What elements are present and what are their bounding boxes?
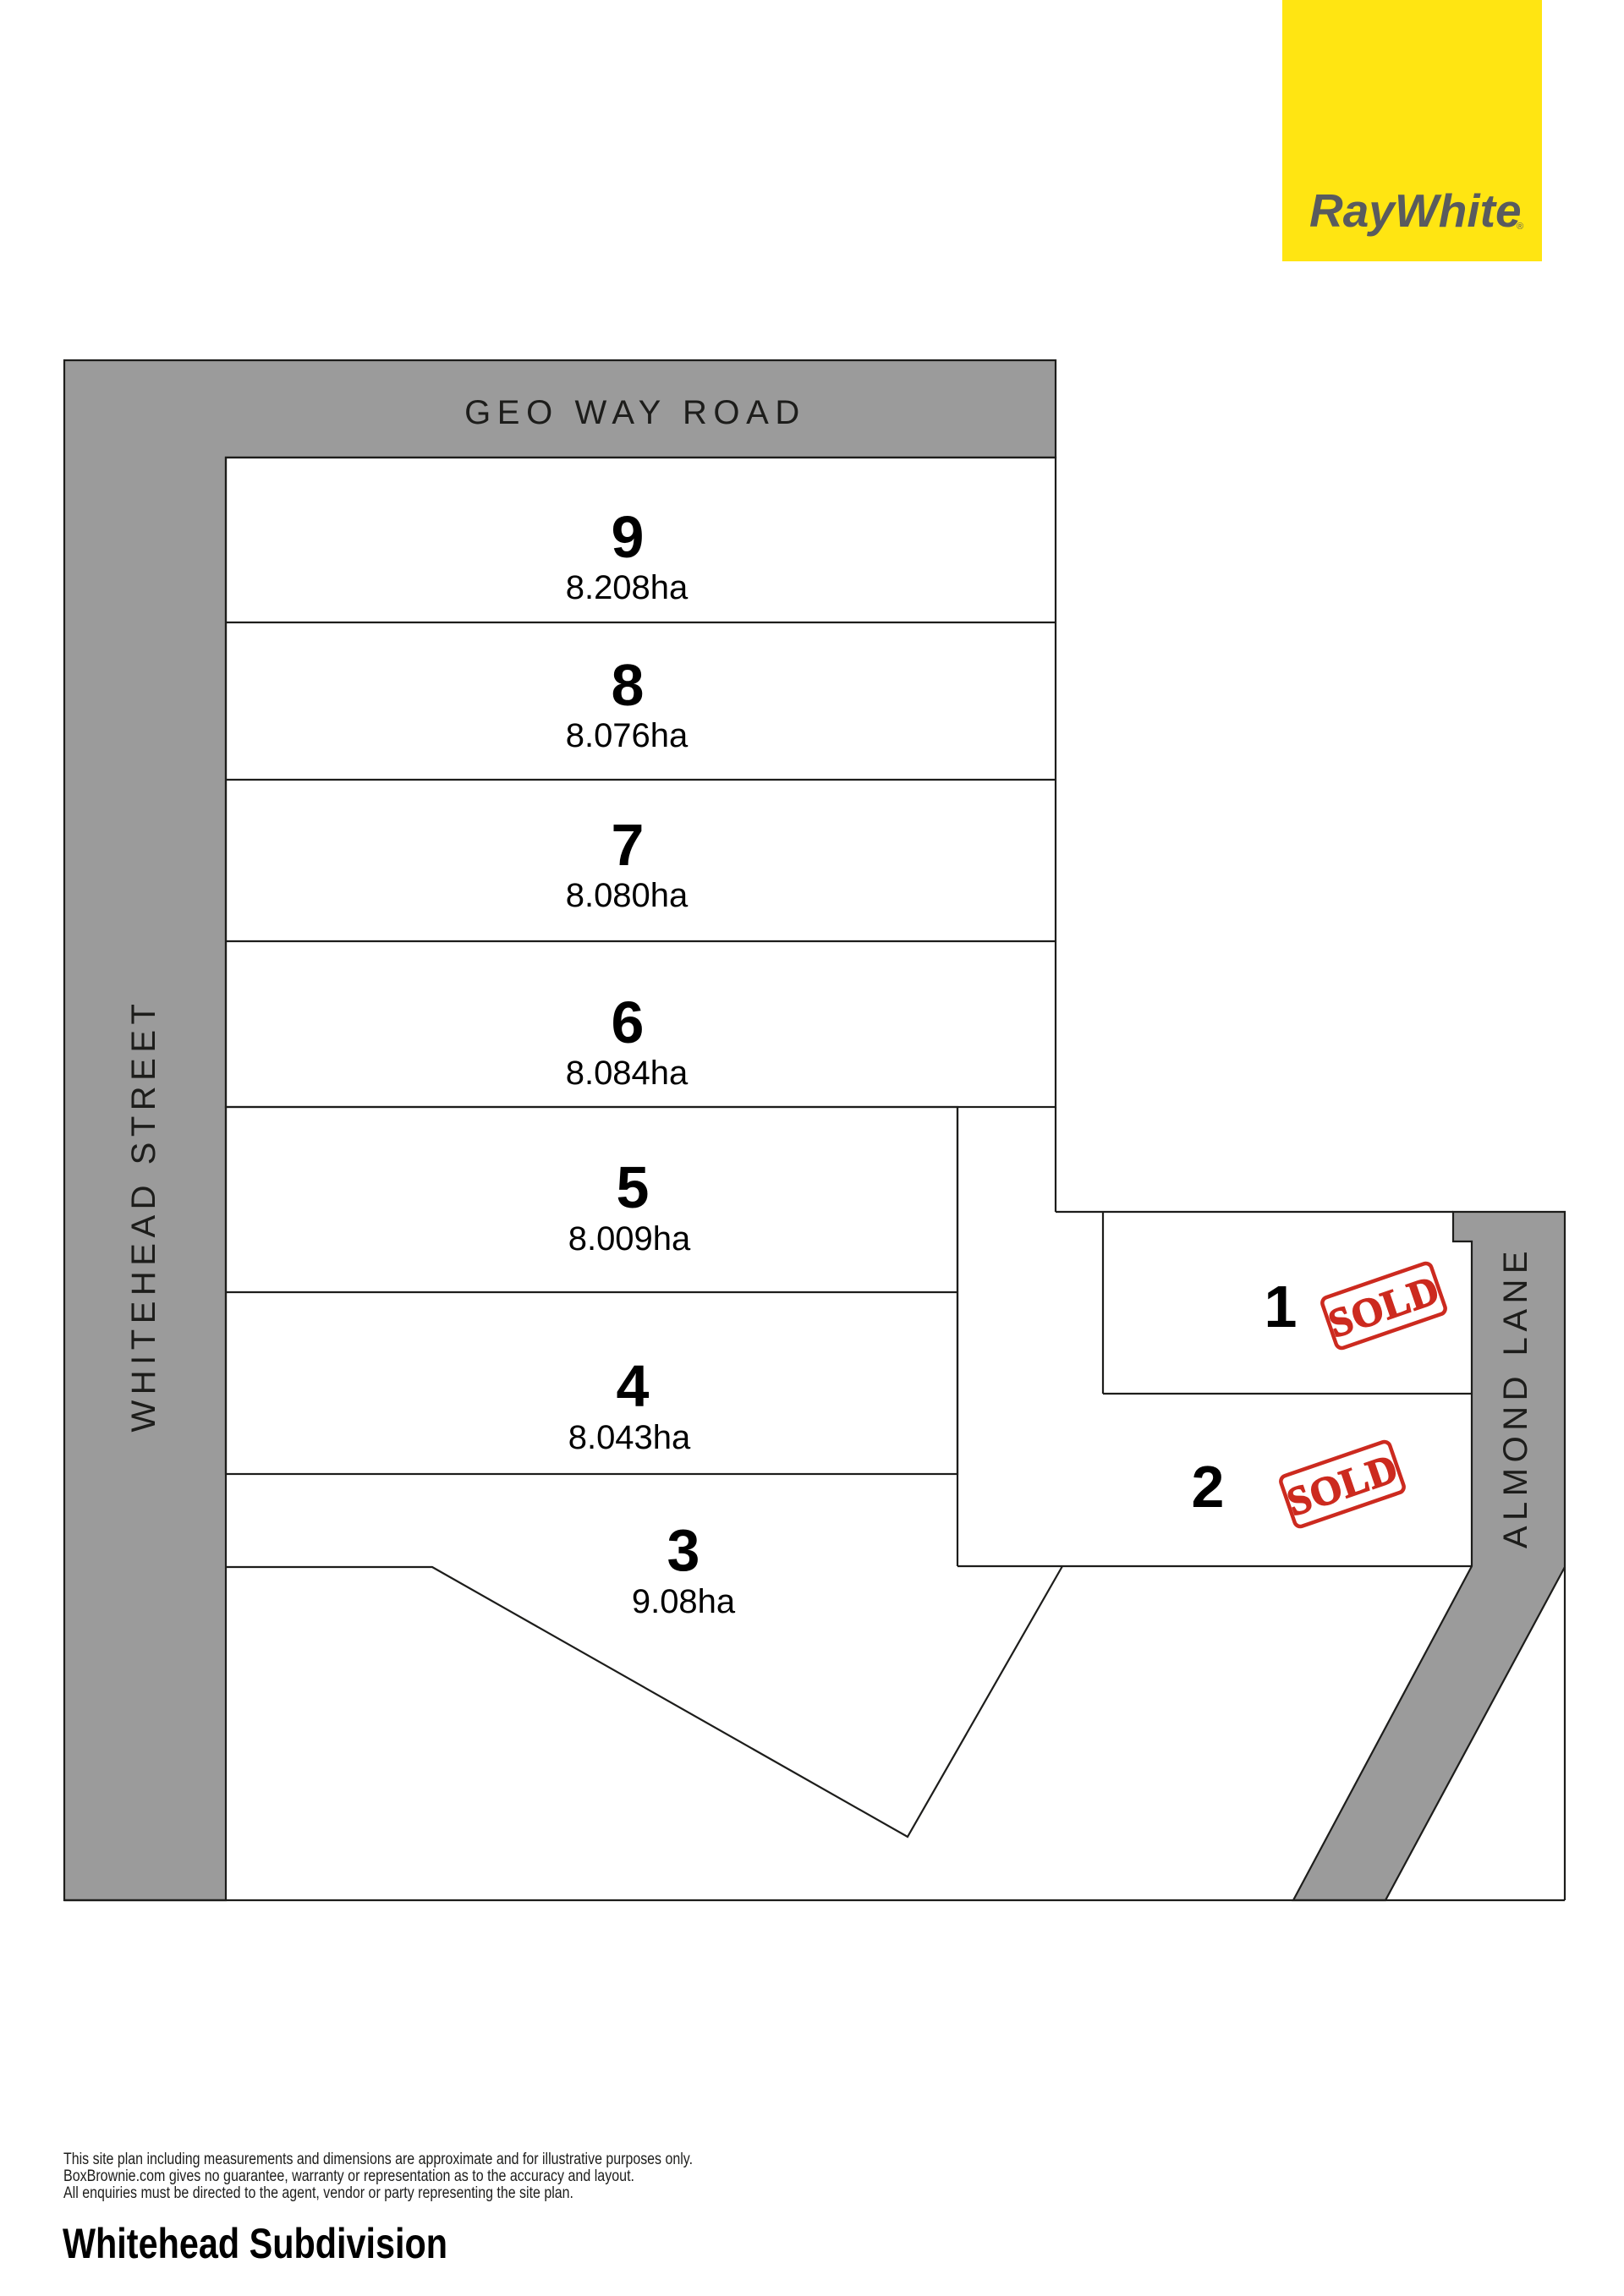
svg-text:1: 1 [1265,1274,1298,1340]
svg-text:8.043ha: 8.043ha [568,1419,691,1456]
svg-text:8.208ha: 8.208ha [566,569,689,606]
svg-text:Whitehead Subdivision: Whitehead Subdivision [63,2220,447,2267]
svg-text:BoxBrownie.com gives no guaran: BoxBrownie.com gives no guarantee, warra… [63,2167,634,2185]
svg-text:8.080ha: 8.080ha [566,877,689,914]
svg-text:®: ® [1517,222,1523,232]
svg-text:3: 3 [667,1517,700,1583]
svg-text:WHITEHEAD STREET: WHITEHEAD STREET [125,999,162,1433]
svg-text:7: 7 [612,812,645,878]
svg-text:8.009ha: 8.009ha [568,1220,691,1258]
svg-text:9.08ha: 9.08ha [632,1583,736,1620]
svg-text:All enquiries must be directed: All enquiries must be directed to the ag… [63,2184,573,2202]
svg-text:RayWhite: RayWhite [1309,184,1522,237]
svg-text:6: 6 [612,989,645,1055]
svg-text:ALMOND LANE: ALMOND LANE [1497,1246,1534,1548]
svg-text:8: 8 [612,652,645,718]
svg-text:2: 2 [1192,1454,1225,1520]
svg-text:9: 9 [612,504,645,570]
svg-text:8.084ha: 8.084ha [566,1055,689,1092]
svg-text:GEO WAY ROAD: GEO WAY ROAD [464,394,806,431]
svg-text:8.076ha: 8.076ha [566,717,689,754]
svg-text:5: 5 [617,1154,650,1220]
svg-text:4: 4 [617,1353,650,1419]
svg-text:This site plan including measu: This site plan including measurements an… [63,2151,693,2168]
